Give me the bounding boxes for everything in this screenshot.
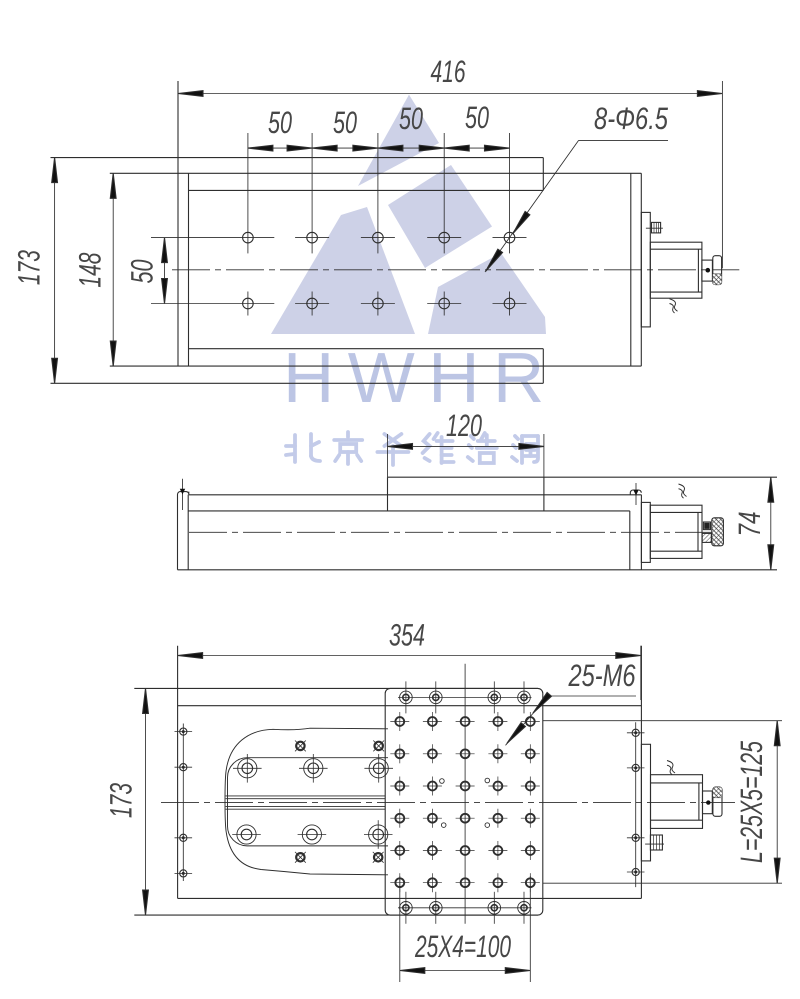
svg-text:L=25X5=125: L=25X5=125 xyxy=(734,740,769,863)
svg-text:50: 50 xyxy=(465,100,489,135)
svg-text:25-M6: 25-M6 xyxy=(568,658,636,693)
svg-text:50: 50 xyxy=(399,101,423,136)
svg-text:173: 173 xyxy=(104,783,139,818)
svg-text:HWHR: HWHR xyxy=(283,339,558,418)
svg-text:416: 416 xyxy=(431,54,467,89)
svg-text:50: 50 xyxy=(125,260,160,284)
svg-text:50: 50 xyxy=(268,105,292,140)
svg-text:74: 74 xyxy=(732,512,767,537)
svg-text:50: 50 xyxy=(333,105,357,140)
svg-text:148: 148 xyxy=(73,252,108,288)
svg-text:354: 354 xyxy=(389,618,425,653)
svg-text:120: 120 xyxy=(446,408,482,443)
svg-text:25X4=100: 25X4=100 xyxy=(414,929,511,964)
svg-text:8-Φ6.5: 8-Φ6.5 xyxy=(594,101,669,136)
svg-text:173: 173 xyxy=(12,250,47,285)
